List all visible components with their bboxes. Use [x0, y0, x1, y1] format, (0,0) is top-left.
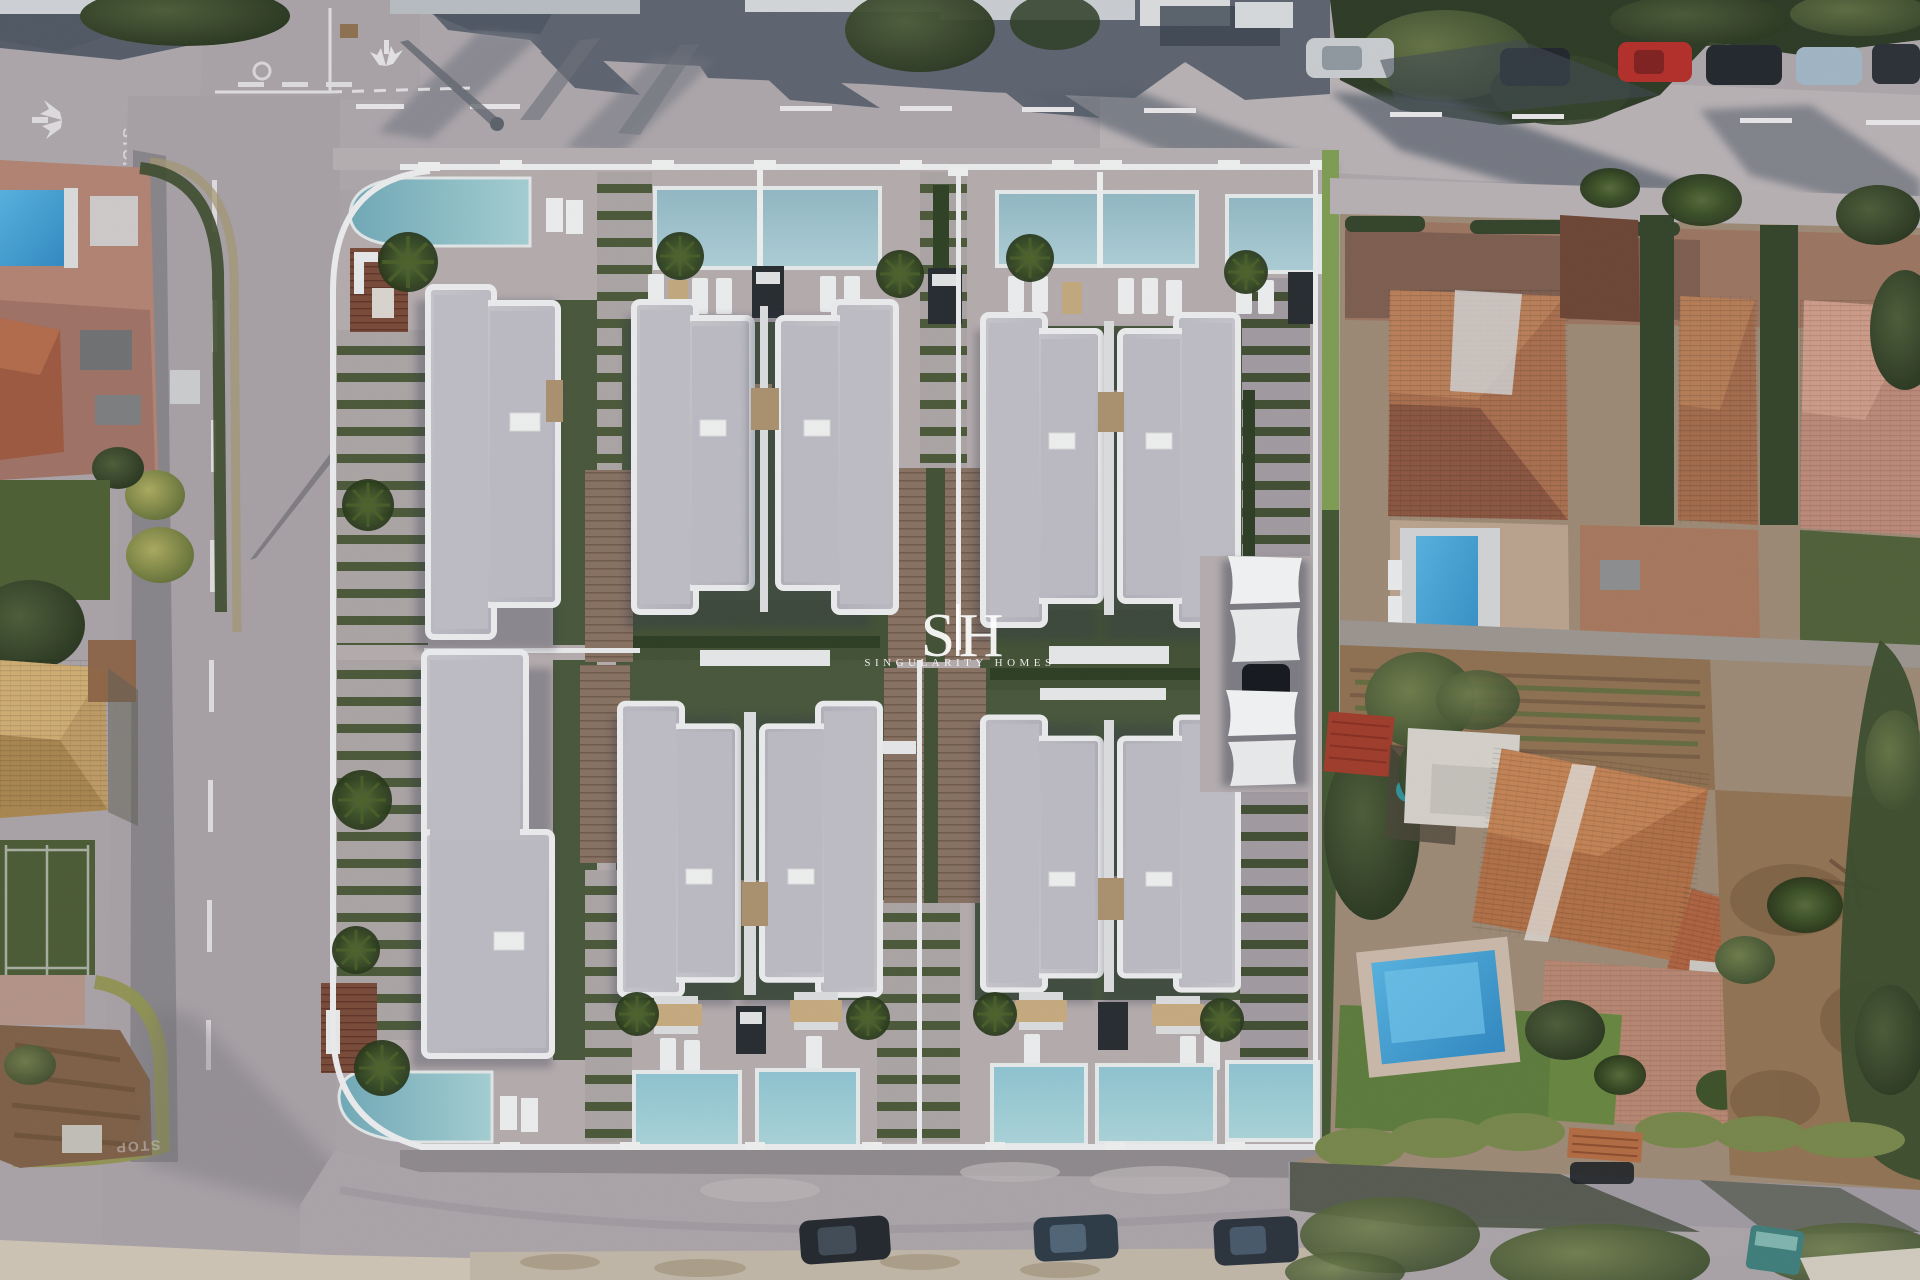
svg-text:SINGULARITY HOMES: SINGULARITY HOMES	[864, 657, 1055, 669]
